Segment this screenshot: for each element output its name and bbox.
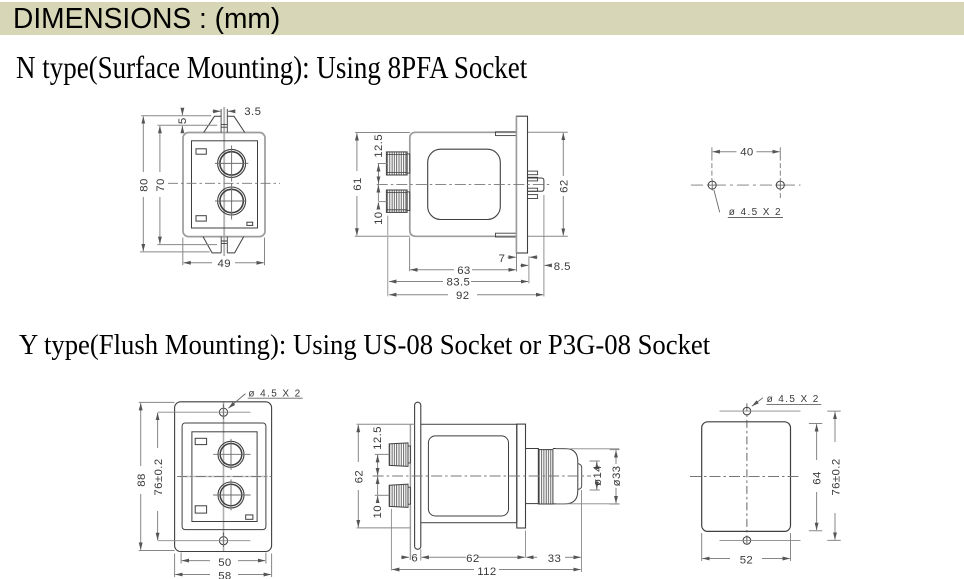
svg-text:76±0.2: 76±0.2	[830, 458, 842, 495]
svg-text:12.5: 12.5	[372, 426, 384, 450]
svg-text:70: 70	[155, 178, 167, 191]
svg-text:5: 5	[177, 117, 189, 124]
svg-text:62: 62	[466, 553, 479, 565]
svg-text:3.5: 3.5	[244, 106, 261, 118]
svg-text:112: 112	[477, 566, 496, 578]
svg-text:6: 6	[411, 553, 418, 565]
svg-text:ø14: ø14	[592, 465, 604, 486]
svg-text:8.5: 8.5	[554, 261, 571, 273]
svg-text:40: 40	[740, 147, 753, 159]
svg-text:49: 49	[218, 258, 231, 270]
svg-text:62: 62	[353, 470, 365, 483]
svg-text:88: 88	[136, 473, 148, 486]
svg-text:92: 92	[456, 290, 469, 302]
svg-text:ø 4.5 X 2: ø 4.5 X 2	[767, 394, 820, 405]
svg-text:50: 50	[218, 557, 231, 569]
svg-text:ø33: ø33	[611, 466, 623, 487]
svg-text:63: 63	[457, 265, 470, 277]
svg-text:12.5: 12.5	[373, 134, 385, 158]
svg-text:10: 10	[372, 505, 384, 518]
svg-text:64: 64	[812, 471, 824, 484]
svg-text:ø 4.5 X 2: ø 4.5 X 2	[729, 207, 782, 218]
svg-text:58: 58	[218, 570, 231, 579]
svg-text:52: 52	[740, 554, 753, 566]
svg-text:83.5: 83.5	[447, 277, 471, 289]
svg-text:61: 61	[352, 177, 364, 190]
svg-text:10: 10	[373, 211, 385, 224]
svg-text:80: 80	[139, 178, 151, 191]
svg-text:62: 62	[559, 179, 571, 192]
svg-text:33: 33	[548, 553, 561, 565]
svg-text:76±0.2: 76±0.2	[153, 458, 165, 495]
svg-text:7: 7	[499, 253, 506, 265]
